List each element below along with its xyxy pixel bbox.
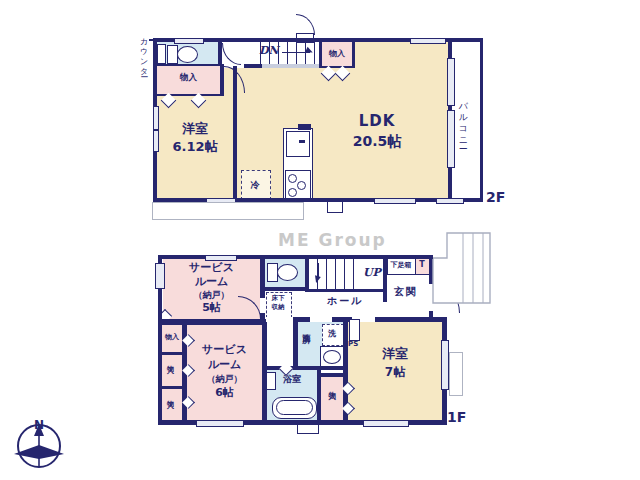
sink-bowl-icon [323, 350, 341, 364]
room-2f-west-name: 洋室 [157, 122, 233, 137]
window [410, 38, 446, 44]
toilet-bowl-icon [277, 264, 298, 281]
shoebox-t-label: T [415, 260, 429, 269]
burner-icon [297, 181, 306, 190]
room-1f-east-name: 洋室 [348, 347, 442, 362]
window [174, 38, 204, 44]
wall [162, 386, 182, 389]
service6-l4: 6帖 [187, 387, 262, 400]
burner-icon [288, 174, 297, 183]
roof-outline [152, 202, 304, 220]
service6-l3: （納戸） [187, 374, 262, 384]
counter-tick [149, 39, 158, 41]
compass-icon: N [8, 410, 70, 476]
wall [262, 322, 267, 425]
entrance-label: 玄関 [387, 286, 425, 298]
floor1-label: 1F [447, 409, 466, 425]
window [447, 58, 455, 106]
window [155, 263, 165, 289]
washer-label: 洗 [322, 329, 342, 338]
toilet-bowl-icon [177, 46, 198, 63]
wall [162, 352, 182, 355]
bath-counter [266, 372, 276, 390]
watermark: ME Group [278, 230, 387, 250]
service6-l1: サービス [187, 344, 262, 357]
service5-l2: ルーム [163, 276, 260, 289]
door-arc [296, 14, 315, 35]
entrance-porch [430, 230, 494, 306]
wall [319, 66, 355, 68]
service5-l1: サービス [163, 262, 260, 275]
wall [158, 255, 433, 259]
room-1f-east-size: 7帖 [348, 366, 442, 380]
closet-2f-top-label: 物入 [320, 49, 354, 58]
counter [157, 44, 166, 64]
stairs-up-label: UP [363, 267, 381, 280]
faucet-icon [299, 140, 305, 143]
wall [480, 38, 483, 202]
balcony-label: バルコニー [458, 95, 468, 146]
floor2-label: 2F [486, 189, 505, 205]
wall [293, 317, 298, 366]
floor-plan: 物入 物入 DN 洋室 6.12帖 LDK 20.5帖 冷 バルコニー 2F カ… [0, 0, 640, 480]
window [374, 198, 416, 204]
hall-label: ホール [327, 295, 363, 307]
closet-2f-left-label: 物入 [157, 73, 220, 83]
stairs-up [308, 257, 357, 290]
ldk-size: 20.5帖 [337, 133, 417, 149]
washroom-label: 洗面所 [301, 327, 310, 330]
wall [233, 66, 237, 200]
window [363, 420, 409, 427]
window [153, 130, 159, 152]
wall [260, 259, 265, 288]
closet-1f-mid [321, 377, 343, 420]
closet-c-label: 物入 [166, 394, 174, 396]
wall [260, 287, 265, 298]
underfloor-l2: 収納 [266, 304, 290, 311]
counter-label: カウンター [139, 32, 148, 73]
wall [260, 287, 310, 291]
closet-1f-mid-label: 物入 [327, 385, 336, 387]
bath-corridor [266, 317, 293, 366]
ldk-name: LDK [337, 113, 417, 130]
closet-a-label: 物入 [162, 333, 182, 341]
window [205, 255, 237, 261]
closet-b-label: 物入 [166, 359, 174, 361]
window [196, 420, 244, 427]
burner-icon [288, 188, 297, 197]
underfloor-l1: 床下 [266, 295, 290, 302]
pipe-space [349, 319, 360, 341]
shoebox-label: 下足箱 [387, 261, 415, 269]
window [447, 110, 455, 168]
kitchen-sink-icon [286, 131, 310, 157]
room-2f-west-size: 6.12帖 [157, 140, 233, 155]
window [436, 198, 464, 204]
fridge-label: 冷 [241, 180, 269, 190]
stair-opening [262, 64, 319, 68]
bathtub-inner [276, 400, 313, 415]
stairs-dn-label: DN [259, 45, 279, 58]
wall [298, 124, 311, 130]
window [441, 340, 449, 390]
service6-l2: ルーム [187, 359, 262, 372]
wall [220, 66, 224, 96]
door-tab [327, 201, 343, 213]
shutter-outline [449, 352, 463, 396]
window [153, 106, 159, 130]
door-tab [297, 424, 319, 434]
